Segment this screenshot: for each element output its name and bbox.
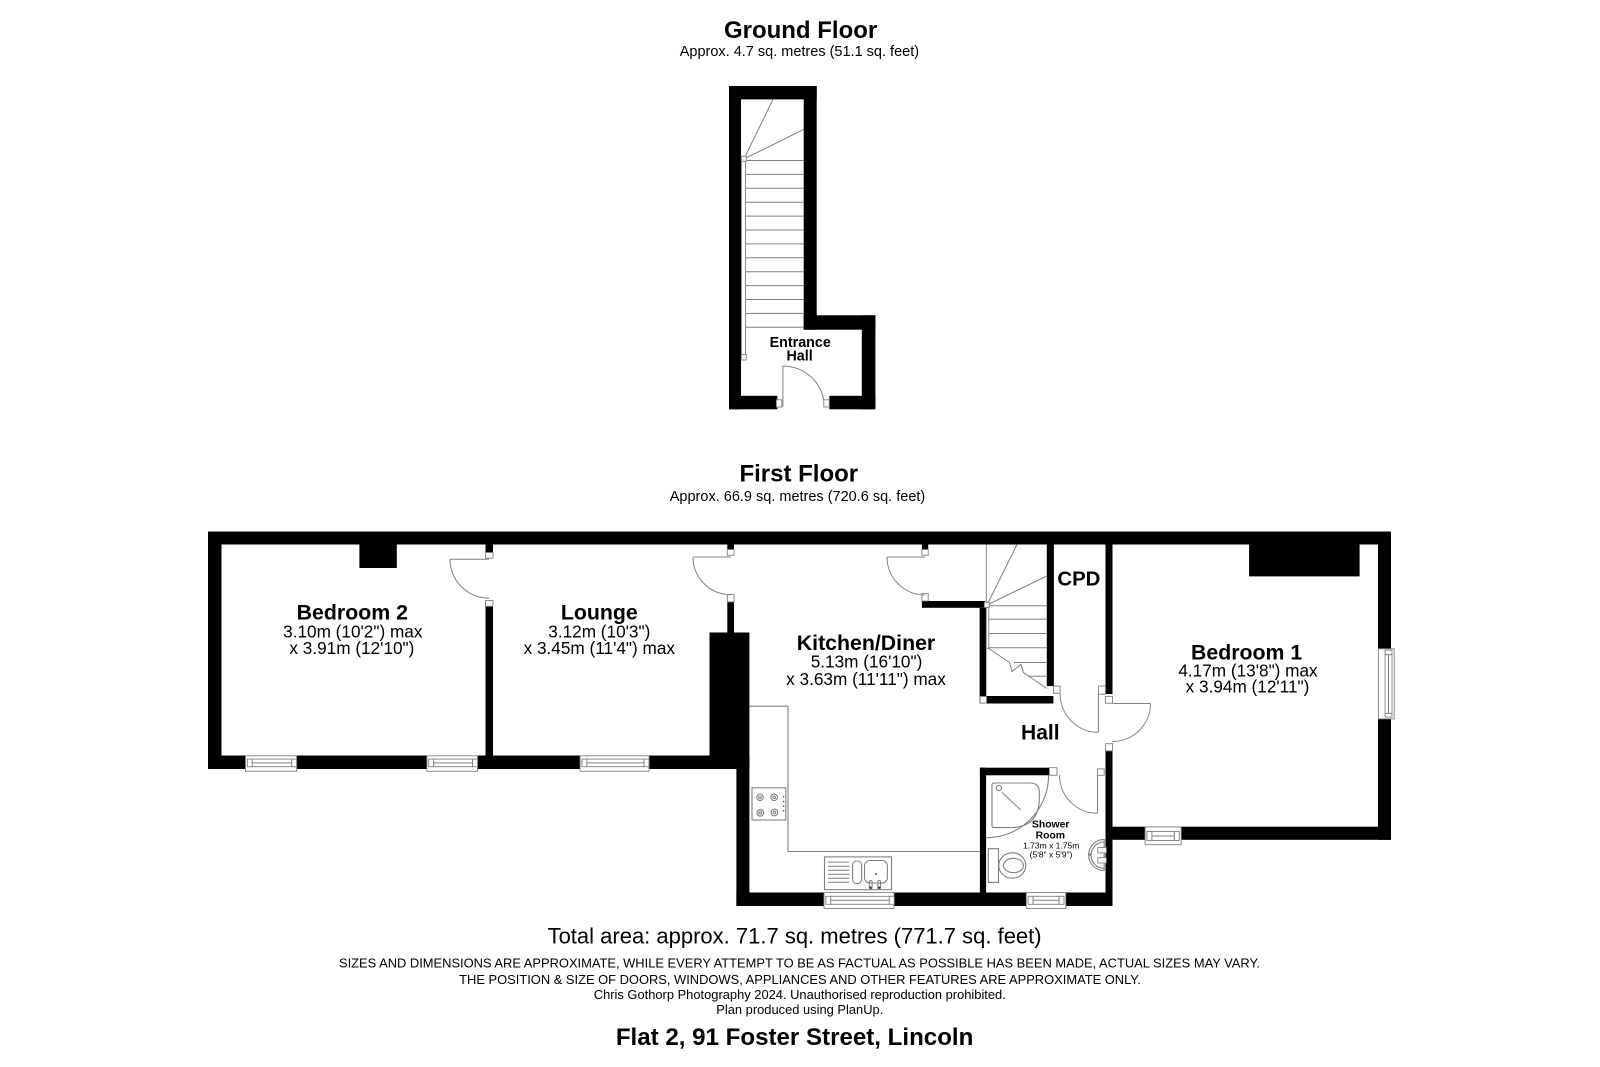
svg-text:Shower: Shower xyxy=(1032,819,1070,830)
svg-text:Hall: Hall xyxy=(786,349,812,365)
svg-text:x 3.91m (12'10"): x 3.91m (12'10") xyxy=(289,638,414,658)
svg-text:x 3.94m (12'11"): x 3.94m (12'11") xyxy=(1186,677,1310,697)
svg-text:Approx. 66.9 sq. metres (720.6: Approx. 66.9 sq. metres (720.6 sq. feet) xyxy=(670,489,926,505)
svg-text:x 3.45m (11'4") max: x 3.45m (11'4") max xyxy=(524,638,676,658)
svg-text:THE POSITION & SIZE OF DOORS,: THE POSITION & SIZE OF DOORS, WINDOWS, A… xyxy=(459,972,1141,987)
svg-text:Ground Floor: Ground Floor xyxy=(724,17,877,44)
svg-text:Plan produced using PlanUp.: Plan produced using PlanUp. xyxy=(716,1002,883,1017)
svg-text:SIZES AND DIMENSIONS ARE APPRO: SIZES AND DIMENSIONS ARE APPROXIMATE, WH… xyxy=(339,956,1260,971)
svg-text:x 3.63m (11'11") max: x 3.63m (11'11") max xyxy=(786,669,946,689)
svg-text:CPD: CPD xyxy=(1057,569,1100,591)
svg-text:(5'8" x 5'9"): (5'8" x 5'9") xyxy=(1030,850,1073,860)
svg-text:Approx. 4.7 sq. metres (51.1 s: Approx. 4.7 sq. metres (51.1 sq. feet) xyxy=(680,44,919,60)
svg-text:Flat 2, 91 Foster Street, Linc: Flat 2, 91 Foster Street, Lincoln xyxy=(616,1024,973,1051)
svg-text:Total area: approx. 71.7 sq. m: Total area: approx. 71.7 sq. metres (771… xyxy=(548,924,1042,949)
svg-text:Hall: Hall xyxy=(1021,722,1060,745)
svg-text:First Floor: First Floor xyxy=(739,461,858,488)
svg-text:Chris Gothorp Photography 2024: Chris Gothorp Photography 2024. Unauthor… xyxy=(594,987,1006,1002)
